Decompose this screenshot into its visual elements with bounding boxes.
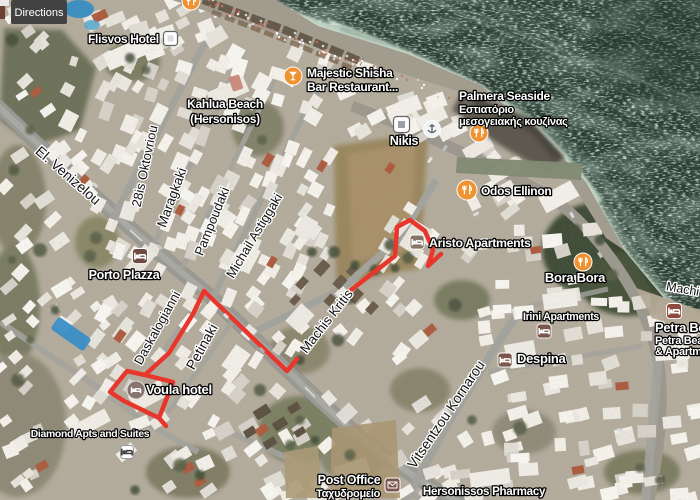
svg-text:Kahlua Beach: Kahlua Beach (187, 97, 263, 111)
svg-text:Εστιατόριο: Εστιατόριο (459, 104, 514, 116)
svg-text:Odos Ellinon: Odos Ellinon (481, 184, 551, 198)
svg-text:Flisvos Hotel: Flisvos Hotel (88, 32, 159, 46)
svg-text:Bora Bora: Bora Bora (545, 270, 606, 285)
svg-text:Diamond Apts and Suites: Diamond Apts and Suites (31, 429, 150, 440)
svg-text:Aristo Apartments: Aristo Apartments (429, 236, 531, 250)
svg-text:Hersonissos Pharmacy: Hersonissos Pharmacy (423, 485, 546, 498)
svg-text:Irini Apartments: Irini Apartments (523, 311, 599, 323)
svg-text:& Apartm: & Apartm (655, 346, 700, 358)
svg-text:Majestic Shisha: Majestic Shisha (307, 66, 393, 80)
svg-text:μεσογειακής κουζίνας: μεσογειακής κουζίνας (459, 116, 568, 128)
svg-text:Nikis: Nikis (390, 134, 419, 148)
svg-text:Porto Plazza: Porto Plazza (89, 268, 161, 282)
svg-text:Petra Be: Petra Be (655, 320, 700, 335)
svg-text:Despina: Despina (517, 351, 567, 366)
svg-text:Post Office: Post Office (318, 473, 381, 487)
svg-text:Ταχυδρομείο: Ταχυδρομείο (316, 488, 381, 500)
svg-text:Voula hotel: Voula hotel (146, 382, 212, 397)
svg-text:Bar Restaurant...: Bar Restaurant... (307, 80, 398, 94)
svg-text:Palmera Seaside: Palmera Seaside (459, 89, 551, 103)
svg-text:(Hersonisos): (Hersonisos) (190, 112, 260, 126)
